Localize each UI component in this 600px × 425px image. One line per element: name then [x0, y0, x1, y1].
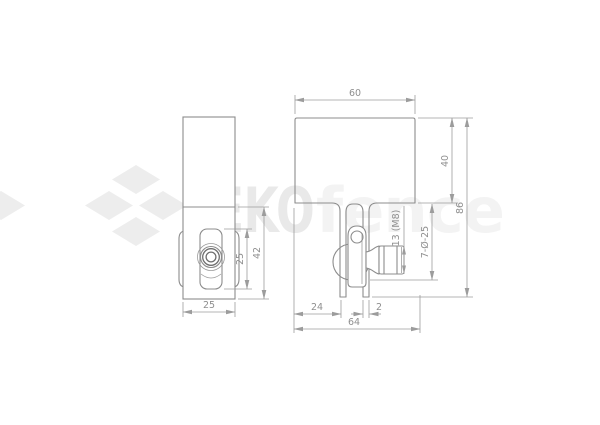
bolt-body [379, 246, 404, 274]
drawing-svg: EKO fence 25 42 25 [0, 0, 600, 425]
dim-text-leg-thickness: 2 [376, 302, 382, 313]
dim-text-overall-height: 86 [455, 202, 466, 214]
dim-text-lower-height: 42 [252, 247, 263, 259]
logo-diamond-bottom [112, 217, 160, 246]
dim-text-leg-offset: 24 [311, 302, 323, 313]
logo-diamond-right [139, 191, 187, 220]
dim-text-overall-width: 64 [348, 317, 360, 328]
technical-drawing-page: EKO fence 25 42 25 [0, 0, 600, 425]
brand-text-light: fence [316, 174, 504, 247]
logo-diamond-left [85, 191, 133, 220]
dim-text-plate-height: 40 [440, 155, 451, 167]
bolt-neck [366, 246, 379, 274]
dim-text-side-width: 25 [203, 300, 215, 311]
dim-text-bolt-head: 13 (M8) [391, 210, 402, 247]
dim-text-slot-height: 25 [235, 253, 246, 265]
dim-text-clamp: 7-Ø-25 [420, 226, 431, 258]
clamp-strap [348, 226, 366, 287]
dim-text-top-width: 60 [349, 88, 361, 99]
side-view [179, 117, 239, 299]
side-body-outline [183, 117, 235, 299]
logo-diamond-edge-fragment [0, 191, 25, 220]
logo-diamond-top [112, 165, 160, 194]
brand-logo-diamonds [0, 165, 187, 246]
